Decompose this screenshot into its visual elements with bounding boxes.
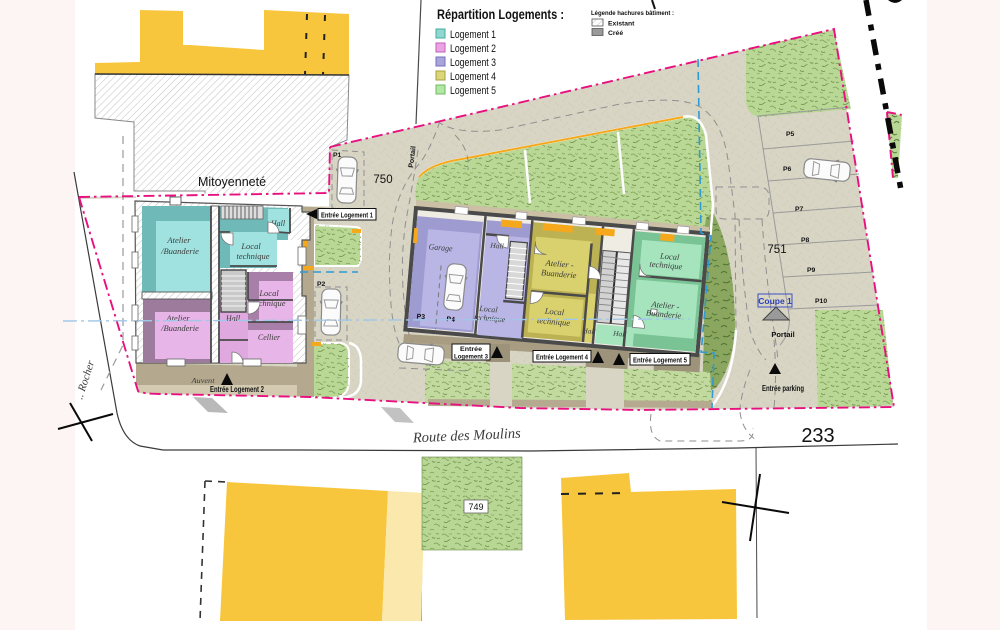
svg-text:750: 750 — [373, 174, 392, 186]
svg-text:Logement 1: Logement 1 — [450, 29, 496, 41]
svg-text:Hall: Hall — [489, 241, 504, 251]
svg-text:Mitoyenneté: Mitoyenneté — [198, 175, 266, 189]
svg-text:Coupe 1: Coupe 1 — [758, 296, 792, 306]
svg-text:P2: P2 — [317, 281, 326, 288]
svg-text:Logement 4: Logement 4 — [450, 71, 496, 83]
svg-text:Local: Local — [258, 288, 279, 298]
svg-text:P6: P6 — [783, 166, 792, 173]
svg-text:P7: P7 — [795, 206, 804, 213]
svg-text:Cellier: Cellier — [258, 333, 281, 342]
svg-text:Entrée Logement 2: Entrée Logement 2 — [210, 384, 264, 394]
svg-text:technique: technique — [236, 251, 269, 261]
svg-text:Portail: Portail — [771, 330, 794, 339]
svg-text:Atelier: Atelier — [166, 235, 191, 245]
svg-text:Hall: Hall — [225, 314, 241, 323]
svg-text:Légende hachures bâtiment :: Légende hachures bâtiment : — [591, 10, 674, 17]
svg-text:Garage: Garage — [428, 241, 453, 253]
svg-text:Entrée Logement 4: Entrée Logement 4 — [536, 353, 589, 362]
svg-text:Entrée: Entrée — [460, 346, 482, 353]
svg-text:Logement 5: Logement 5 — [450, 85, 496, 97]
svg-text:Atelier: Atelier — [165, 313, 190, 323]
svg-text:Logement 3: Logement 3 — [454, 354, 488, 361]
svg-text:P9: P9 — [807, 267, 816, 274]
svg-text:751: 751 — [767, 244, 786, 256]
svg-text:Répartition Logements :: Répartition Logements : — [437, 7, 564, 22]
svg-text:/Buanderie: /Buanderie — [160, 246, 199, 256]
svg-text:Entrée parking: Entrée parking — [762, 384, 804, 393]
svg-text:P1: P1 — [333, 152, 342, 159]
svg-text:P5: P5 — [786, 131, 795, 138]
svg-text:Créé: Créé — [608, 30, 623, 37]
svg-text:Hall: Hall — [581, 326, 596, 336]
svg-text:749: 749 — [468, 502, 483, 512]
svg-text:Entrée Logement 5: Entrée Logement 5 — [633, 356, 687, 365]
svg-text:Hall: Hall — [612, 329, 627, 339]
svg-text:Local: Local — [240, 241, 261, 251]
svg-text:/Buanderie: /Buanderie — [160, 323, 199, 333]
svg-text:P8: P8 — [801, 237, 810, 244]
svg-text:Logement 3: Logement 3 — [450, 57, 496, 69]
svg-text:233: 233 — [801, 425, 834, 447]
svg-text:Logement 2: Logement 2 — [450, 43, 496, 55]
svg-text:Entrée Logement 1: Entrée Logement 1 — [321, 211, 373, 220]
svg-text:Existant: Existant — [608, 21, 635, 28]
svg-text:P10: P10 — [815, 298, 827, 305]
